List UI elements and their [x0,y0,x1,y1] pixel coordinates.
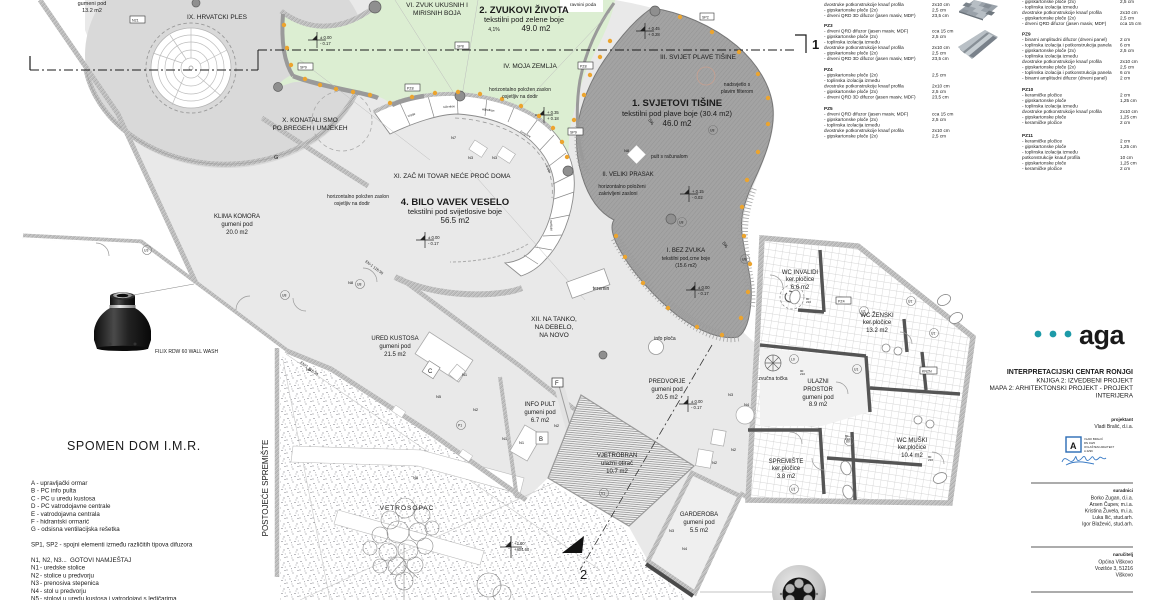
svg-text:1. SVJETOVI TIŠINE: 1. SVJETOVI TIŠINE [632,97,722,109]
svg-text:KLIMA KOMORA: KLIMA KOMORA [214,214,260,220]
svg-text:N2: N2 [554,423,560,428]
svg-text:dvostruke potkonstrukcije knau: dvostruke potkonstrukcije knauf profila [824,128,904,133]
svg-text:- gipskartonske ploče (2x): - gipskartonske ploče (2x) [824,8,878,13]
svg-text:N2: N2 [712,460,718,465]
svg-text:A: A [1070,441,1077,451]
svg-text:2,5 cm: 2,5 cm [932,134,946,139]
svg-text:horizontalno položen zaslon: horizontalno položen zaslon [489,87,551,93]
svg-text:N8: N8 [413,475,419,480]
svg-text:N7: N7 [451,135,457,140]
svg-text:N2: N2 [31,572,39,579]
svg-text:SP1, SP2 - spojni elementi izm: SP1, SP2 - spojni elementi između različ… [31,542,193,549]
svg-text:XII. NA TANKO,: XII. NA TANKO, [531,316,577,323]
svg-text:NA DEBELO,: NA DEBELO, [535,324,574,331]
svg-text:dvostruke potkonstrukcije knau: dvostruke potkonstrukcije knauf profila [824,2,904,7]
svg-text:2x10 cm: 2x10 cm [932,45,950,50]
svg-text:- drveni QRD difuzor (jasen ma: - drveni QRD difuzor (jasen masiv, MDF) [824,112,909,117]
svg-text:- uredske stolice: - uredske stolice [40,565,86,572]
svg-text:- 0.17: - 0.17 [428,241,439,246]
svg-text:2 cm: 2 cm [1120,139,1130,144]
svg-text:gumeni pod: gumeni pod [78,1,107,7]
svg-text:N3: N3 [31,580,39,587]
svg-text:PO BREGEH I UMJEKEH: PO BREGEH I UMJEKEH [272,125,347,132]
svg-text:N3: N3 [468,155,474,160]
svg-text:21.5 m2: 21.5 m2 [384,352,406,358]
svg-text:+ 0.28: + 0.28 [648,32,660,37]
svg-text:P1: P1 [458,424,462,428]
svg-text:III. SVIJET PLAVE TIŠINE: III. SVIJET PLAVE TIŠINE [660,52,737,61]
svg-text:- stol u predvorju: - stol u predvorju [40,588,87,595]
svg-text:dvostruke potkonstrukcije knau: dvostruke potkonstrukcije knauf profila [1022,10,1102,15]
svg-text:+ 0.18: + 0.18 [547,116,559,121]
svg-text:cca 15 cm: cca 15 cm [1120,21,1141,26]
svg-text:210: 210 [845,437,850,441]
svg-text:U8: U8 [679,221,683,225]
svg-text:F: F [555,381,559,387]
svg-text:- toplinska izolacija i potkon: - toplinska izolacija i potkonstrukcija … [1022,70,1112,75]
svg-text:IV. MOJA ZEMLJA: IV. MOJA ZEMLJA [503,63,557,70]
svg-text:1,25 cm: 1,25 cm [1120,98,1137,103]
svg-text:(15.6 m2): (15.6 m2) [675,263,697,269]
svg-text:3.8 m2: 3.8 m2 [777,474,796,480]
svg-text:- stolovi u uredu kustosa i va: - stolovi u uredu kustosa i vatrodojavi … [40,596,177,600]
svg-text:- 0.02: - 0.02 [692,195,703,200]
svg-text:- gipskartonske ploče (2x): - gipskartonske ploče (2x) [1022,0,1076,4]
svg-text:gumeni pod: gumeni pod [651,387,682,393]
svg-text:± 0.00: ± 0.00 [320,35,332,40]
svg-text:U8: U8 [710,129,714,133]
svg-text:- drveni QRD 3D difuzor (jasen: - drveni QRD 3D difuzor (jasen masiv, MD… [824,13,916,18]
svg-text:INFO PULT: INFO PULT [525,402,556,408]
svg-text:osjetljiv na dodir: osjetljiv na dodir [502,94,538,100]
svg-text:tekstilni pod plave boje (30.4: tekstilni pod plave boje (30.4 m2) [622,109,733,118]
svg-text:- 0.17: - 0.17 [320,41,331,46]
svg-text:10 cm: 10 cm [1120,155,1133,160]
svg-text:zakrivljeni zasloni: zakrivljeni zasloni [599,191,638,197]
svg-text:A 4299: A 4299 [1084,449,1093,453]
svg-text:POSTOJEĆE SPREMIŠTE: POSTOJEĆE SPREMIŠTE [261,440,270,537]
svg-text:cca 15 cm: cca 15 cm [932,29,953,34]
svg-text:- toplinska izolacija i potkon: - toplinska izolacija i potkonstrukcija … [1022,43,1112,48]
svg-text:23,5 cm: 23,5 cm [932,56,949,61]
svg-text:- 0.17: - 0.17 [691,405,702,410]
svg-text:X. KONATALI SMO: X. KONATALI SMO [282,117,338,124]
svg-text:VJETROBRAN: VJETROBRAN [597,453,637,459]
svg-text:gumeni pod: gumeni pod [802,395,833,401]
svg-text:- 0.17: - 0.17 [698,291,709,296]
svg-text:2 cm: 2 cm [1120,37,1130,42]
svg-text:- gipskartonske ploče: - gipskartonske ploče [1022,161,1067,166]
svg-text:GOTOVI NAMJEŠTAJ: GOTOVI NAMJEŠTAJ [70,557,131,564]
svg-text:- toplinska izolacija između: - toplinska izolacija između [824,78,880,83]
svg-text:Vozišće 3, 51216: Vozišće 3, 51216 [1095,566,1133,572]
svg-text:Arsen Čupev, m.i.a.: Arsen Čupev, m.i.a. [1089,501,1133,508]
svg-text:± 0.00: ± 0.00 [428,235,440,240]
svg-text:I. BEZ ZVUKA: I. BEZ ZVUKA [667,248,705,254]
svg-text:projektant: projektant [1111,417,1133,422]
svg-text:MAPA 2: ARHITEKTONSKI PROJEKT: MAPA 2: ARHITEKTONSKI PROJEKT - PROJEKT [990,385,1134,392]
svg-text:2,5 cm: 2,5 cm [932,89,946,94]
svg-text:2,5 cm: 2,5 cm [932,73,946,78]
svg-text:6 cm: 6 cm [1120,70,1130,75]
svg-text:dvostruke potkonstrukcije knau: dvostruke potkonstrukcije knauf profila [1022,109,1102,114]
svg-text:2x10 cm: 2x10 cm [932,128,950,133]
svg-text:- drveni QRD difuzor (jasen ma: - drveni QRD difuzor (jasen masiv, MDF) [824,29,909,34]
svg-text:dvostruke potkonstrukcije knau: dvostruke potkonstrukcije knauf profila [824,84,904,89]
svg-text:E - vatrodojavna centrala: E - vatrodojavna centrala [31,511,100,518]
svg-text:URED KUSTOSA: URED KUSTOSA [371,336,418,342]
svg-text:G: G [274,155,278,161]
svg-text:FILIX RDW 60 WALL WASH: FILIX RDW 60 WALL WASH [155,349,218,355]
svg-text:ker.pločice: ker.pločice [772,466,801,472]
svg-text:N3: N3 [492,155,498,160]
svg-text:PZ3: PZ3 [824,23,833,28]
svg-text:- gipskartonske ploče (2x): - gipskartonske ploče (2x) [824,51,878,56]
svg-text:N8: N8 [624,148,630,153]
svg-text:U1: U1 [791,488,795,492]
svg-text:U1: U1 [908,300,912,304]
svg-text:L0: L0 [791,358,795,362]
svg-text:2: 2 [580,567,587,582]
svg-text:G - odsisna ventilacijska reše: G - odsisna ventilacijska rešetka [31,526,120,533]
svg-text:1,25 cm: 1,25 cm [1120,161,1137,166]
svg-text:- gipskartonske ploče (2x): - gipskartonske ploče (2x) [824,73,878,78]
svg-text:- gipskartonske ploče (2x): - gipskartonske ploče (2x) [824,117,878,122]
svg-text:2,5 cm: 2,5 cm [932,51,946,56]
svg-text:N4: N4 [31,588,39,595]
svg-text:4,1%: 4,1% [488,27,500,33]
svg-text:2 cm: 2 cm [1120,93,1130,98]
svg-text:potkonstrukcije knauf profila: potkonstrukcije knauf profila [1022,155,1080,160]
svg-text:2x10 cm: 2x10 cm [1120,10,1138,15]
svg-text:PZ5: PZ5 [824,106,833,111]
svg-text:- gipskartonske ploče: - gipskartonske ploče [1022,98,1067,103]
svg-text:PZ11: PZ11 [1022,133,1033,138]
svg-text:10.4 m2: 10.4 m2 [901,453,923,459]
svg-text:- gipskartonske ploče: - gipskartonske ploče [1022,144,1067,149]
svg-text:Borko Zugan, d.i.a.: Borko Zugan, d.i.a. [1091,496,1133,502]
svg-text:2,5 cm: 2,5 cm [932,117,946,122]
svg-text:WC ŽENSKI: WC ŽENSKI [860,311,894,319]
svg-text:2,5 cm: 2,5 cm [932,34,946,39]
svg-text:B: B [539,437,543,443]
svg-text:- keramičke pločice: - keramičke pločice [1022,166,1063,171]
svg-text:PZ10: PZ10 [1022,87,1034,92]
svg-text:SP8: SP8 [457,45,464,49]
svg-text:WC INVALIDI: WC INVALIDI [782,270,819,276]
svg-text:SP2: SP2 [702,16,709,20]
svg-text:gumeni pod: gumeni pod [683,520,714,526]
svg-text:ulazni otirač: ulazni otirač [601,461,633,467]
svg-text:- gipskartonske ploče (2x): - gipskartonske ploče (2x) [1022,16,1076,21]
svg-text:gumeni pod: gumeni pod [379,344,410,350]
svg-text:+404.60: +404.60 [514,547,530,552]
svg-text:ker.pločice: ker.pločice [863,320,892,326]
svg-text:- keramičke pločice: - keramičke pločice [1022,120,1063,125]
svg-text:N3: N3 [728,392,734,397]
svg-text:gumeni pod: gumeni pod [524,410,555,416]
svg-text:VETROSOPAC: VETROSOPAC [380,505,435,512]
svg-text:- toplinska izolacija između: - toplinska izolacija između [824,40,880,45]
svg-text:2,5 cm: 2,5 cm [1120,48,1134,53]
svg-text:D - PC vatrodojavne centrale: D - PC vatrodojavne centrale [31,503,111,510]
svg-text:- keramičke pločice: - keramičke pločice [1022,93,1063,98]
svg-text:- gipskartonske ploče (2x): - gipskartonske ploče (2x) [824,89,878,94]
svg-text:- toplinska izolacija između: - toplinska izolacija između [1022,54,1078,59]
svg-text:- binarni amplitudni difuzor (: - binarni amplitudni difuzor (drveni pan… [1022,76,1107,81]
svg-text:teremin: teremin [593,286,610,292]
svg-text:6 cm: 6 cm [1120,43,1130,48]
svg-text:210: 210 [800,372,805,376]
svg-text:PREDVORJE: PREDVORJE [649,379,686,385]
svg-text:II. VELIKI PRASAK: II. VELIKI PRASAK [602,172,653,178]
svg-text:ULAZNI: ULAZNI [807,379,829,385]
svg-text:2 cm: 2 cm [1120,76,1130,81]
svg-text:49.0 m2: 49.0 m2 [522,24,551,33]
svg-text:V1: V1 [601,492,605,496]
svg-text:Kristina Žuvela, m.i.a.: Kristina Žuvela, m.i.a. [1085,507,1133,515]
svg-text:B - PC info pulta: B - PC info pulta [31,488,77,495]
svg-text:46.0 m2: 46.0 m2 [663,119,692,128]
svg-text:13.2 m2: 13.2 m2 [82,8,102,14]
svg-text:PZ4: PZ4 [838,300,845,304]
svg-text:GARDEROBA: GARDEROBA [680,512,718,518]
svg-text:N8: N8 [306,367,312,372]
svg-text:+2.00: +2.00 [514,541,525,546]
svg-text:Luka Ilić, stud.arh.: Luka Ilić, stud.arh. [1092,515,1133,521]
svg-text:2,5 cm: 2,5 cm [932,8,946,13]
svg-text:nadsvjetlo s: nadsvjetlo s [724,82,751,88]
svg-text:PROSTOR: PROSTOR [803,387,833,393]
svg-text:- gipskartonske ploče: - gipskartonske ploče [1022,115,1067,120]
svg-text:NA NOVO: NA NOVO [539,332,569,339]
svg-text:1,25 cm: 1,25 cm [1120,115,1137,120]
svg-text:Vladi Bralić, d.i.a.: Vladi Bralić, d.i.a. [1094,424,1133,430]
svg-text:U8: U8 [282,294,286,298]
svg-text:N1: N1 [462,372,468,377]
svg-text:zvučna točka: zvučna točka [758,376,787,382]
svg-text:+ 0.35: + 0.35 [547,110,559,115]
svg-text:PZ9: PZ9 [1022,32,1031,37]
svg-text:1,25 cm: 1,25 cm [1120,144,1137,149]
svg-text:210: 210 [806,300,811,304]
svg-text:dvostruke potkonstrukcije knau: dvostruke potkonstrukcije knauf profila [1022,59,1102,64]
svg-text:- toplinska izolacija između: - toplinska izolacija između [1022,150,1078,155]
svg-text:ker.pločice: ker.pločice [786,277,815,283]
svg-text:23,5 cm: 23,5 cm [932,95,949,100]
svg-text:2 cm: 2 cm [1120,166,1130,171]
svg-text:+ 0.45: + 0.45 [648,26,660,31]
svg-text:N2: N2 [731,447,737,452]
svg-text:mekljuje: mekljuje [549,220,554,232]
svg-text:- prenosiva stepenica: - prenosiva stepenica [40,580,99,587]
svg-text:N4: N4 [744,402,750,407]
svg-text:VI. ZVUK UKUSNIH I: VI. ZVUK UKUSNIH I [406,2,468,9]
svg-text:horizontalno položen zaslon: horizontalno položen zaslon [327,194,389,200]
svg-text:aga: aga [1079,320,1126,350]
svg-text:N5: N5 [436,394,442,399]
svg-text:PZ8: PZ8 [407,87,414,91]
svg-text:- gipskartonske ploče (2x): - gipskartonske ploče (2x) [824,134,878,139]
svg-text:13.2 m2: 13.2 m2 [866,328,888,334]
svg-text:- stolice u predvorju: - stolice u predvorju [40,572,95,579]
svg-text:- drveni QRD 3D difuzor (jasen: - drveni QRD 3D difuzor (jasen masiv, MD… [824,95,916,100]
svg-text:PZ4: PZ4 [824,67,833,72]
svg-text:- drveni QRD 3D difuzor (jasen: - drveni QRD 3D difuzor (jasen masiv, MD… [824,56,916,61]
svg-text:plavim filterom: plavim filterom [721,89,753,95]
svg-text:- toplinska izolacija između: - toplinska izolacija između [1022,104,1078,109]
svg-text:N1: N1 [519,440,525,445]
svg-text:osjetljiv na dodir: osjetljiv na dodir [334,201,370,207]
svg-text:N1: N1 [31,565,39,572]
svg-text:XI. ZAČ MI TOVAR NEĆE PROĆ DO: XI. ZAČ MI TOVAR NEĆE PROĆ DOMA [393,171,511,180]
svg-text:U1: U1 [931,332,935,336]
svg-text:tekstilni pod,crne boje: tekstilni pod,crne boje [662,256,711,262]
svg-text:U1: U1 [854,368,858,372]
svg-text:- gipskartonske ploče (2x): - gipskartonske ploče (2x) [824,34,878,39]
svg-text:5.5 m2: 5.5 m2 [690,528,709,534]
svg-text:dvostruke potkonstrukcije knau: dvostruke potkonstrukcije knauf profila [824,45,904,50]
svg-text:+ 0.15: + 0.15 [692,189,704,194]
svg-text:20.0 m2: 20.0 m2 [226,230,248,236]
svg-text:± 0.00: ± 0.00 [691,399,703,404]
svg-text:cca 15 cm: cca 15 cm [932,112,953,117]
svg-text:2x10 cm: 2x10 cm [1120,59,1138,64]
svg-text:WC MUŠKI: WC MUŠKI [897,437,928,444]
svg-text:N1: N1 [502,436,508,441]
svg-text:- toplinska izolacija između: - toplinska izolacija između [824,123,880,128]
svg-text:C - PC u uredu kustosa: C - PC u uredu kustosa [31,495,96,502]
svg-text:20.5 m2: 20.5 m2 [656,395,678,401]
svg-text:INTERPRETACIJSKI CENTAR RONJGI: INTERPRETACIJSKI CENTAR RONJGI [1007,369,1133,376]
svg-text:210: 210 [928,458,933,462]
svg-text:- drveni QRD difuzor (jasen ma: - drveni QRD difuzor (jasen masiv, MDF) [1022,21,1107,26]
svg-text:1: 1 [812,37,819,52]
svg-text:MIRISNIH BOJA: MIRISNIH BOJA [413,10,462,17]
svg-text:2,5 cm: 2,5 cm [1120,65,1134,70]
svg-text:2x10 cm: 2x10 cm [932,84,950,89]
svg-text:2x10 cm: 2x10 cm [932,2,950,7]
svg-text:N5: N5 [31,596,39,600]
svg-text:2,5 cm: 2,5 cm [1120,0,1134,4]
svg-text:naručitelj: naručitelj [1113,552,1133,557]
svg-text:U8: U8 [742,258,746,262]
svg-text:gumeni pod: gumeni pod [221,222,252,228]
svg-text:10.7 m2: 10.7 m2 [606,469,628,475]
svg-text:6.7 m2: 6.7 m2 [531,418,550,424]
svg-text:2x10 cm: 2x10 cm [1120,109,1138,114]
svg-text:- gipskartonske ploče (2x): - gipskartonske ploče (2x) [1022,65,1076,70]
svg-text:ker.pločice: ker.pločice [898,445,927,451]
svg-text:SPREMIŠTE: SPREMIŠTE [769,458,804,465]
svg-text:suradnici: suradnici [1113,488,1133,493]
svg-text:SP9: SP9 [570,131,577,135]
svg-text:SP9: SP9 [300,66,307,70]
svg-text:N8: N8 [348,280,354,285]
svg-text:8.9 m2: 8.9 m2 [809,402,828,408]
svg-text:N21: N21 [132,19,139,23]
svg-text:- binarni amplitudni difuzor (: - binarni amplitudni difuzor (drveni pan… [1022,37,1107,42]
svg-text:ravnini poda: ravnini poda [570,2,596,8]
svg-text:PZ8: PZ8 [580,65,587,69]
svg-text:- gipskartonske ploče (2x): - gipskartonske ploče (2x) [1022,48,1076,53]
svg-text:SPOMEN DOM I.M.R.: SPOMEN DOM I.M.R. [67,439,201,453]
svg-text:Igor Blažević, stud.arh.: Igor Blažević, stud.arh. [1082,522,1133,528]
svg-text:A - upravljački ormar: A - upravljački ormar [31,480,87,487]
svg-text:tekstilni pod zelene boje: tekstilni pod zelene boje [484,15,564,24]
svg-text:KN2N: KN2N [922,370,932,374]
svg-text:N1, N2, N3...: N1, N2, N3... [31,557,67,564]
svg-text:± 0.00: ± 0.00 [698,285,710,290]
svg-text:info ploča: info ploča [654,336,676,342]
svg-text:23,5 cm: 23,5 cm [932,13,949,18]
svg-text:- toplinska izolacija između: - toplinska izolacija između [1022,5,1078,10]
svg-text:N4: N4 [682,546,688,551]
svg-text:2 cm: 2 cm [1120,120,1130,125]
svg-text:C: C [428,369,433,375]
svg-text:6.6 m2: 6.6 m2 [791,285,810,291]
svg-text:U3: U3 [144,249,148,253]
svg-text:56.5 m2: 56.5 m2 [441,216,470,225]
svg-text:pult s računalom: pult s računalom [651,154,688,160]
svg-text:KNJIGA 2: IZVEDBENI PROJEKT: KNJIGA 2: IZVEDBENI PROJEKT [1036,378,1133,385]
svg-text:- keramičke pločice: - keramičke pločice [1022,139,1063,144]
svg-text:Općina Viškovo: Općina Viškovo [1098,560,1133,566]
svg-text:Viškovo: Viškovo [1116,573,1134,579]
svg-text:INTERIJERA: INTERIJERA [1096,393,1134,400]
svg-text:N3: N3 [669,528,675,533]
svg-text:U8: U8 [357,283,361,287]
svg-text:F - hidrantski ormarić: F - hidrantski ormarić [31,519,89,526]
svg-text:N2: N2 [473,407,479,412]
svg-text:2,5 cm: 2,5 cm [1120,16,1134,21]
svg-text:IX. HRVATCKI PLES: IX. HRVATCKI PLES [187,14,248,21]
svg-text:tekstilni pod svijetlosive boj: tekstilni pod svijetlosive boje [408,207,502,216]
svg-text:horizontalno položeni: horizontalno položeni [598,184,645,190]
